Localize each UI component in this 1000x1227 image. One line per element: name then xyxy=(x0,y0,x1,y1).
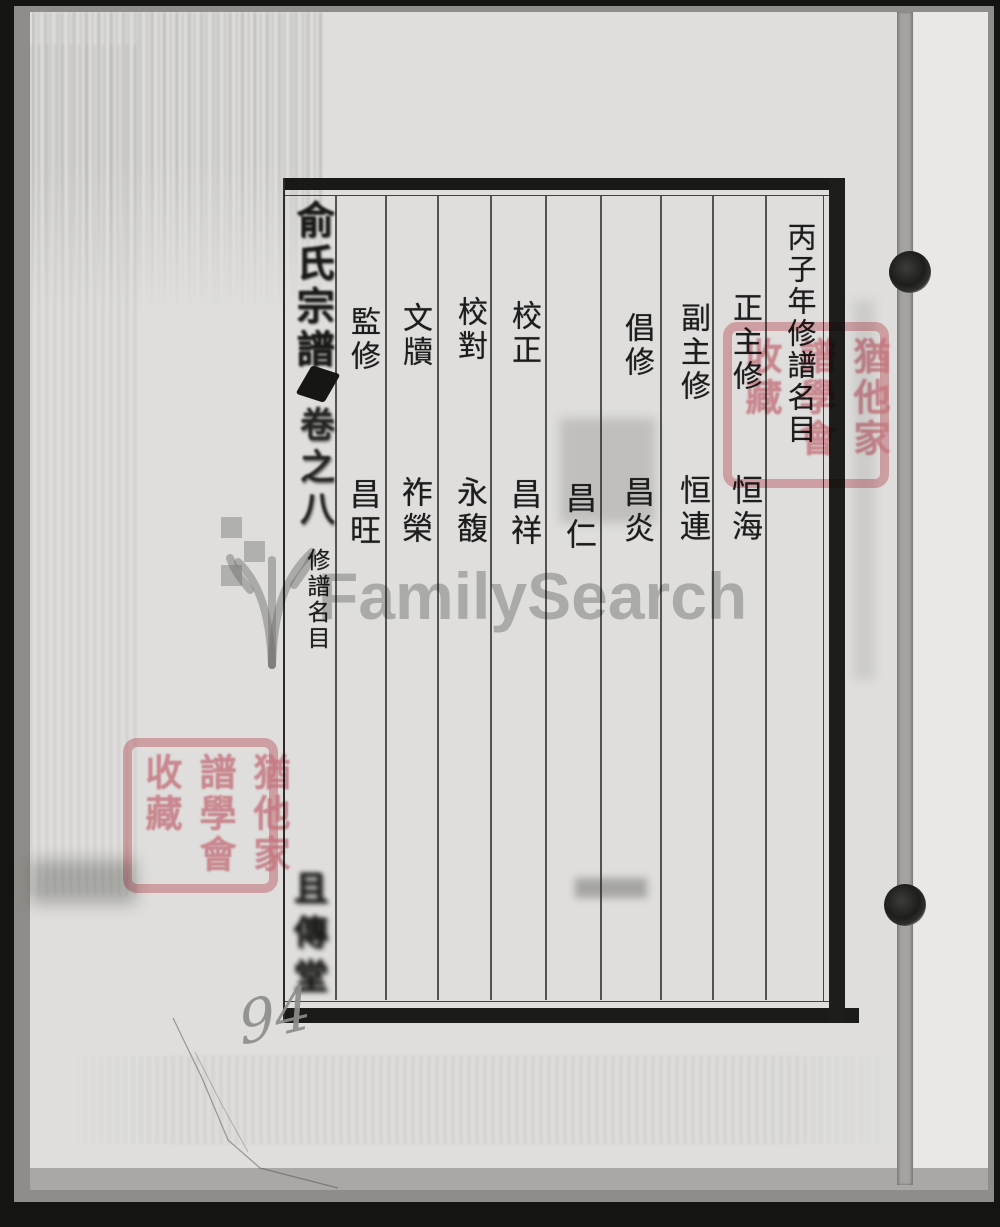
role-label: 校對 xyxy=(447,296,491,364)
library-seal-top-right: 猶他家 譜學會 收藏 xyxy=(723,322,889,488)
table-border-right xyxy=(829,178,845,1023)
role-label: 監修 xyxy=(340,306,384,374)
person-name: 昌祥 xyxy=(501,478,546,550)
column-divider xyxy=(385,196,387,1000)
person-name: 昌仁 xyxy=(556,482,601,554)
seal-text-column: 猶他家 xyxy=(842,337,896,460)
role-label: 校正 xyxy=(501,300,545,368)
seal-text-column: 收藏 xyxy=(734,337,788,419)
role-label: 倡修 xyxy=(614,312,658,380)
scanned-genealogy-page: 俞氏宗譜 卷之八 修譜名目 且傳堂 丙子年修譜名目 正主修 恒海 副主修 恒連 … xyxy=(0,0,1000,1227)
scan-texture-left xyxy=(30,45,136,895)
column-divider xyxy=(545,196,547,1000)
seal-text-column: 收藏 xyxy=(134,753,188,835)
binding-grommet-top xyxy=(889,251,931,293)
spine-title: 俞氏宗譜 xyxy=(285,200,340,372)
person-name: 恒連 xyxy=(670,474,715,546)
role-label: 文牘 xyxy=(392,302,436,370)
column-divider xyxy=(437,196,439,1000)
genealogy-table: 俞氏宗譜 卷之八 修譜名目 且傳堂 丙子年修譜名目 正主修 恒海 副主修 恒連 … xyxy=(283,178,845,1026)
seal-text-column: 猶他家 xyxy=(242,753,296,876)
binding-grommet-bottom xyxy=(884,884,926,926)
page-bottom-edge xyxy=(30,1168,988,1190)
table-innerline-right xyxy=(823,195,824,1001)
person-name: 昌炎 xyxy=(614,476,659,548)
table-border-bottom xyxy=(283,1008,859,1023)
binding-strip xyxy=(897,12,913,1185)
spine-section-label: 修譜名目 xyxy=(299,548,333,652)
table-innerline-bottom xyxy=(285,1001,829,1002)
person-name: 昌旺 xyxy=(340,478,385,550)
paper-right-margin xyxy=(914,12,988,1185)
table-border-top xyxy=(283,178,845,190)
spine-volume: 卷之八 xyxy=(289,406,340,532)
scan-texture-bottom xyxy=(60,1055,900,1145)
seal-text-column: 譜學會 xyxy=(788,337,842,460)
column-divider xyxy=(600,196,602,1000)
scan-smudge-left xyxy=(30,860,136,904)
table-innerline-top xyxy=(285,195,829,196)
person-name: 永馥 xyxy=(447,476,492,548)
person-name: 祚榮 xyxy=(392,476,437,548)
role-label: 副主修 xyxy=(670,302,714,404)
library-seal-bottom-left: 猶他家 譜學會 收藏 xyxy=(123,738,278,893)
column-divider xyxy=(660,196,662,1000)
seal-text-column: 譜學會 xyxy=(188,753,242,876)
